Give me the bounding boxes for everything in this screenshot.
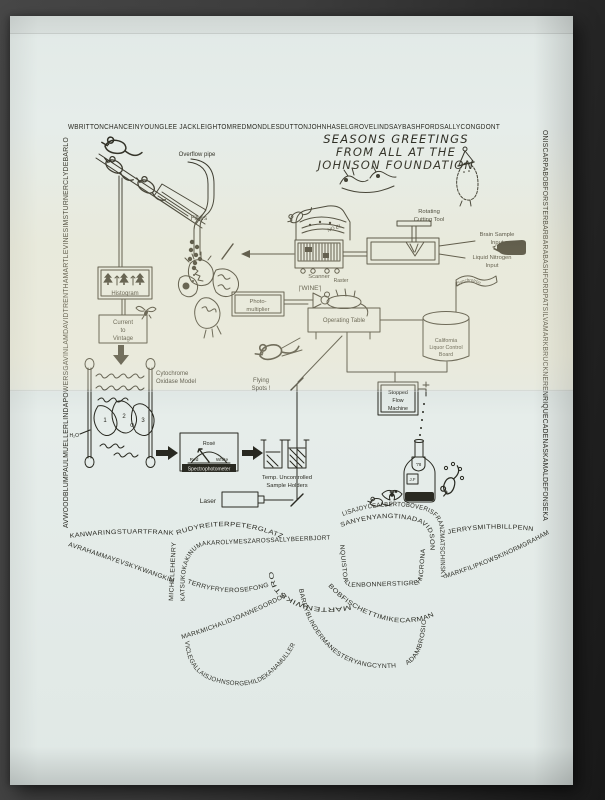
bow-run-left-tail-upper: MARKMICHALIDJOANNEGORDON: [181, 592, 289, 641]
cytochrome-label-2: Oxidase Model: [156, 379, 196, 385]
current-label-3: Vintage: [113, 336, 134, 342]
spectrophotometer-label: Spectrophotometer: [188, 467, 231, 473]
card-artwork: WBRITTONCHANCEINYOUNGLEE JACKLEIGHTOMRED…: [10, 16, 573, 785]
right-arrow: [156, 446, 178, 460]
laser-label: Laser: [200, 498, 217, 505]
wine-bottle-drawing: [404, 440, 464, 503]
cytochrome-label-1: Cytochrome: [156, 371, 189, 377]
scanner-label: Scanner: [308, 274, 330, 280]
mitochondria-drawing: [178, 252, 238, 338]
bow-run-right-loop-inner-top: SANYENYANGTINADAVIDSON: [340, 513, 436, 551]
bow-of-names: KANWARINGSTUARTFRANK AVRAHAMMAYEVSKYKWAN…: [10, 16, 551, 687]
histogram-connector: [122, 299, 125, 315]
bow-run-left-loop-bottom: TERRYFRYEROSEFONG: [186, 578, 270, 594]
current-label-1: Current: [113, 320, 133, 326]
complex-1-label: 1: [103, 418, 107, 424]
rotating-label-2: Cutting Tool: [414, 217, 445, 223]
complex-2-label: 2: [122, 414, 126, 420]
flying-spots-label-2: Spots !: [252, 386, 271, 392]
h2o-label: H₂O: [70, 433, 80, 439]
scanner-cutter-connector: [343, 252, 367, 256]
operating-table-drawing: [284, 289, 380, 339]
bow-run-knot-left-vertical: MICHELEHENRY: [168, 541, 178, 601]
current-label-2: to: [120, 328, 126, 334]
table-stoppedflow-line: [347, 332, 447, 382]
arrow-to-holders: [242, 446, 263, 460]
bow-run-left-upper: KANWARINGSTUARTFRANK: [69, 529, 174, 540]
cutting-tool-drawing: [367, 221, 439, 264]
card-title-line3: JOHNSON FOUNDATION: [316, 158, 475, 172]
border-names-top: WBRITTONCHANCEINYOUNGLEE JACKLEIGHTOMRED…: [68, 124, 500, 131]
stopped-flow-label-3: Machine: [388, 406, 408, 412]
down-arrow: [113, 345, 129, 365]
histogram-label: Histogram: [111, 291, 138, 297]
o2-label: O₂: [130, 423, 136, 429]
photomultiplier-label-1: Photo-: [249, 299, 266, 305]
bow-run-right-loop-under: BOBFISCHETTIMIKECARMAN: [327, 583, 436, 625]
flying-mouse-drawing: [254, 336, 302, 362]
card-top-fold: [10, 16, 573, 34]
photomultiplier-box: [232, 292, 308, 316]
operating-table-label: Operating Table: [323, 318, 366, 324]
greeting-card: WBRITTONCHANCEINYOUNGLEE JACKLEIGHTOMRED…: [10, 16, 573, 785]
bottle-jf-label: J.F: [410, 477, 416, 482]
bow-run-right-upper: JERRYSMITHBILLPENN: [447, 524, 534, 536]
red-label: Red: [190, 457, 199, 463]
scanner-piano-drawing: [285, 202, 350, 273]
liquor-board-label-3: Board: [439, 352, 453, 358]
photomultiplier-label-2: multiplier: [246, 307, 269, 313]
flying-spots-label-1: Flying: [253, 378, 269, 384]
rotating-label-1: Rotating: [418, 209, 440, 215]
border-names-right: ONISCARPABOBFORSTERBARBARABASHFORDPATSIL…: [541, 130, 548, 521]
input-lines: [439, 241, 475, 258]
bow-run-knot-flip: MARTENWIKSTROM: [10, 16, 352, 613]
cytochrome-model-drawing: [80, 359, 155, 468]
bow-run-right-tail-up: ADAMBROSIO: [404, 619, 428, 667]
bow-run-right-lower: MARKFILIPKOWSKINORMGRAHAM: [444, 529, 550, 580]
overflow-pipe-label: Overflow pipe: [179, 152, 216, 158]
rose-label: Rosé: [203, 441, 215, 447]
liquor-board-label-1: California: [435, 338, 457, 344]
laser-drawing: [222, 336, 342, 507]
temp-label-1: Temp. Uncontrolled: [262, 475, 312, 481]
fly-doodle: [136, 306, 156, 319]
liquor-board-label-2: Liquor Control: [429, 345, 462, 351]
complex-3-label: 3: [141, 418, 145, 424]
filters-label: Filters: [191, 216, 207, 222]
bow-run-right-loop-inner-bottom: NQUISTOALLENBONNERSTIGREHNCRONA: [338, 545, 427, 590]
wine-label: |'WINE'|: [299, 285, 322, 292]
raster-label: Raster: [334, 278, 349, 284]
stopped-flow-label-1: Stopped: [388, 390, 408, 396]
santa-creature: [457, 147, 478, 206]
card-title-line1: SEASONS GREETINGS: [323, 132, 468, 146]
bow-run-left-tail-lower: VICLEGALLAISJOHNSORGEHILDEKANAMULLER: [183, 641, 297, 688]
stopped-flow-label-2: Flow: [392, 398, 403, 404]
border-names-left: AVWOODBLUMPAULMUELLERLINDAPOWERSGAVINLAM…: [63, 137, 70, 528]
temp-label-2: Sample Holders: [266, 483, 307, 489]
bottle-year-label: '78: [416, 462, 422, 467]
sample-holders-drawing: [261, 440, 309, 468]
scanner-beam: [222, 244, 294, 259]
white-label: White: [216, 457, 229, 463]
brain-sample-label-1: Brain Sample: [480, 232, 515, 238]
photo-backdrop: WBRITTONCHANCEINYOUNGLEE JACKLEIGHTOMRED…: [0, 0, 605, 800]
liquid-nitrogen-label-2: Input: [486, 263, 499, 269]
liquid-nitrogen-label-1: Liquid Nitrogen: [473, 255, 512, 261]
card-title-line2: FROM ALL AT THE: [336, 145, 456, 159]
bow-run-left-lower: AVRAHAMMAYEVSKYKWANGKIM: [67, 541, 175, 585]
